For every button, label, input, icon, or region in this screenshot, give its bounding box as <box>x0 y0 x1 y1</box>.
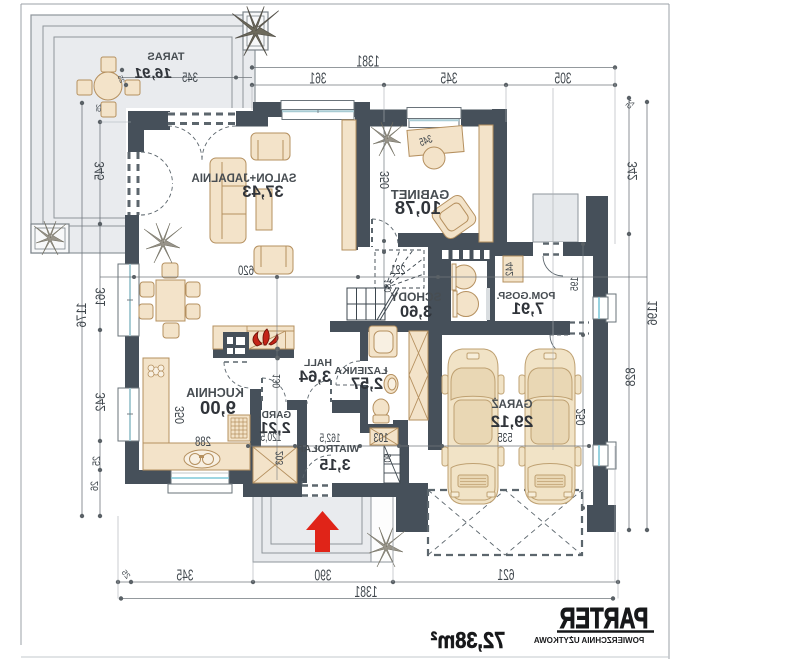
svg-text:1176: 1176 <box>73 303 89 328</box>
svg-text:621: 621 <box>498 567 515 584</box>
svg-text:3,15: 3,15 <box>319 457 350 474</box>
svg-text:TARAS: TARAS <box>147 51 184 63</box>
svg-text:288: 288 <box>195 433 211 449</box>
svg-text:2,57: 2,57 <box>351 375 383 393</box>
svg-text:361: 361 <box>310 71 327 88</box>
svg-text:72,38m²: 72,38m² <box>431 627 505 654</box>
svg-text:37,43: 37,43 <box>242 183 283 201</box>
svg-text:221: 221 <box>391 262 406 277</box>
svg-text:828: 828 <box>622 368 638 387</box>
svg-text:350: 350 <box>172 406 187 424</box>
svg-text:9,00: 9,00 <box>200 397 236 418</box>
svg-text:535: 535 <box>498 430 513 445</box>
svg-text:POWIERZCHNIA UŻYTKOWA: POWIERZCHNIA UŻYTKOWA <box>534 636 645 645</box>
svg-text:345: 345 <box>91 162 107 181</box>
svg-text:250: 250 <box>574 409 588 426</box>
svg-text:PARTER: PARTER <box>559 603 648 635</box>
svg-text:305: 305 <box>555 71 572 88</box>
svg-text:342: 342 <box>624 162 640 181</box>
svg-text:390: 390 <box>314 568 331 585</box>
svg-text:25: 25 <box>91 456 103 466</box>
svg-text:3,60: 3,60 <box>400 303 432 321</box>
svg-text:620: 620 <box>238 262 254 278</box>
svg-text:361: 361 <box>92 288 108 307</box>
svg-text:195: 195 <box>569 277 581 291</box>
svg-text:345: 345 <box>182 69 198 85</box>
svg-text:442: 442 <box>504 262 516 276</box>
svg-text:1196: 1196 <box>644 301 660 326</box>
svg-text:120,5: 120,5 <box>260 430 281 444</box>
svg-text:10,78: 10,78 <box>395 197 441 218</box>
svg-text:1381: 1381 <box>357 54 380 71</box>
svg-text:162,5: 162,5 <box>319 431 340 445</box>
svg-text:SCHODY: SCHODY <box>390 290 441 304</box>
svg-text:180: 180 <box>382 280 394 293</box>
svg-text:25: 25 <box>96 104 103 112</box>
svg-text:345: 345 <box>441 71 458 88</box>
svg-text:350: 350 <box>377 171 392 189</box>
svg-text:7,91: 7,91 <box>512 300 544 318</box>
svg-text:342: 342 <box>92 393 108 412</box>
svg-text:345: 345 <box>177 568 194 585</box>
svg-text:1381: 1381 <box>355 584 378 601</box>
svg-text:16,91: 16,91 <box>134 65 172 82</box>
svg-text:3,64: 3,64 <box>298 368 331 386</box>
svg-text:90: 90 <box>383 454 394 463</box>
svg-text:29,12: 29,12 <box>491 412 534 431</box>
svg-text:203: 203 <box>274 451 286 465</box>
svg-text:GARAŻ: GARAŻ <box>492 398 533 411</box>
svg-text:26: 26 <box>89 481 101 491</box>
svg-text:103: 103 <box>374 430 389 445</box>
svg-text:130: 130 <box>271 374 283 388</box>
